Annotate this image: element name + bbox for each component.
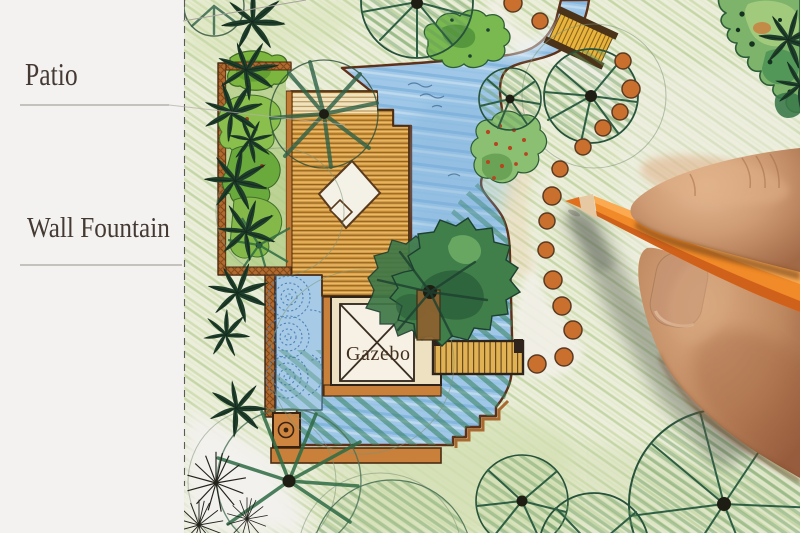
- svg-text:Wall Fountain: Wall Fountain: [27, 212, 170, 244]
- svg-text:Gazebo: Gazebo: [346, 343, 410, 365]
- svg-text:Patio: Patio: [25, 57, 78, 92]
